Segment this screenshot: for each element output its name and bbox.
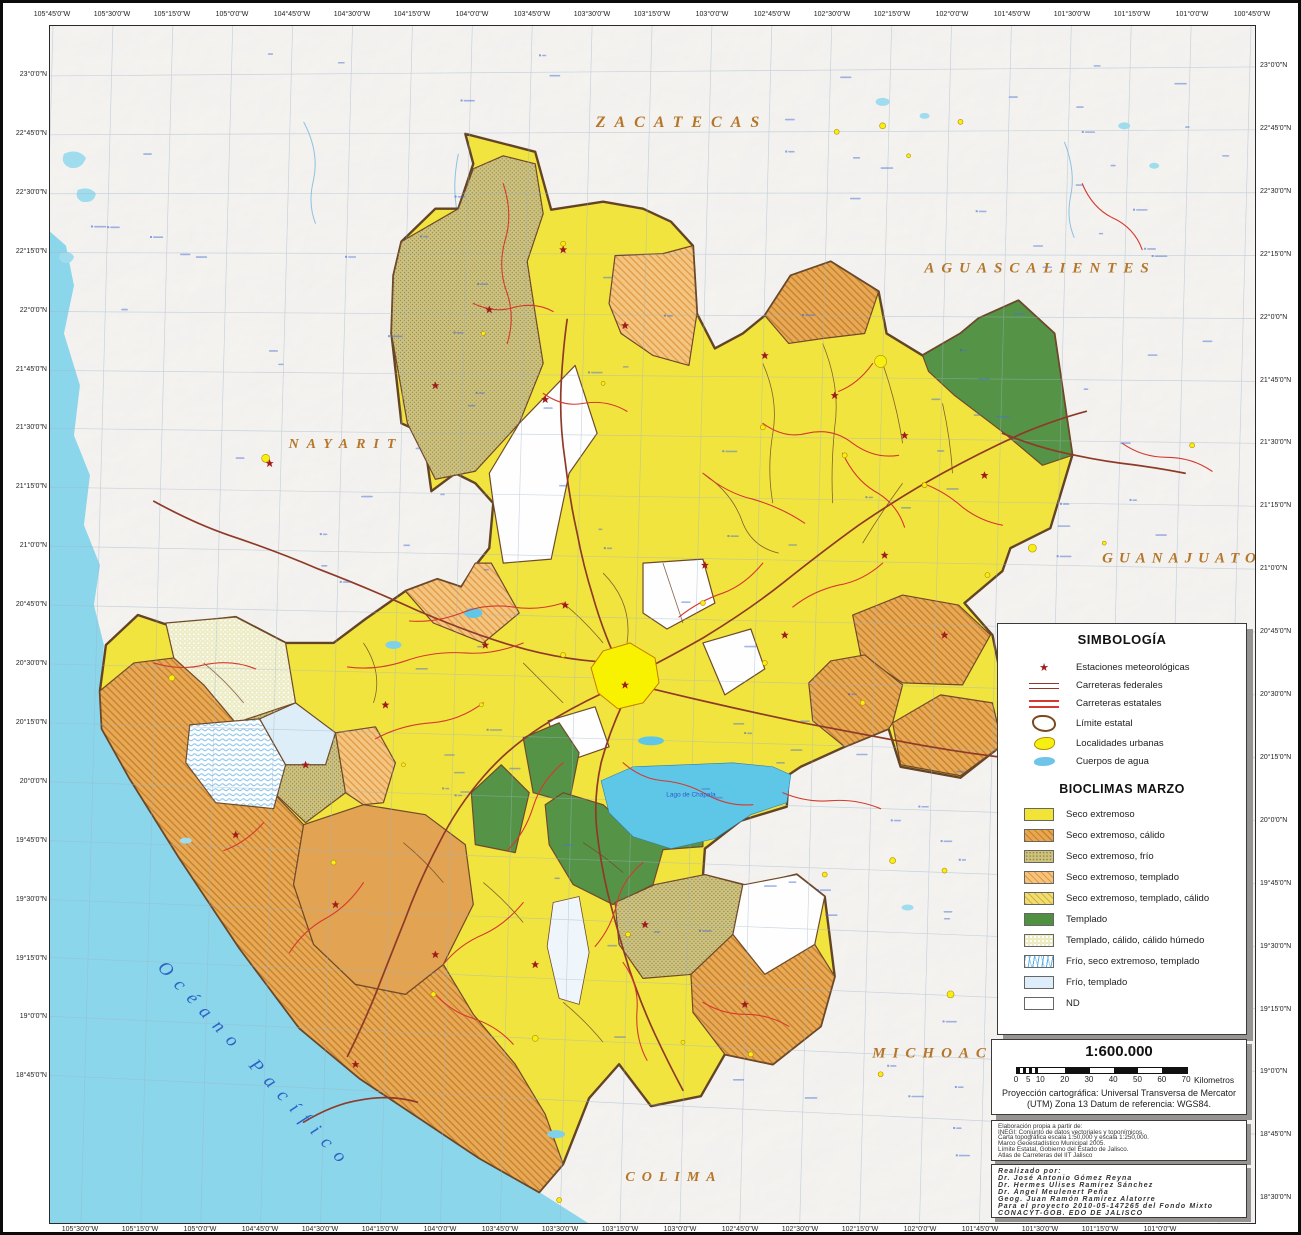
coordinate-label-right: 23°0'0"N [1260, 62, 1301, 70]
bioclima-row: Templado, cálido, cálido húmedo [1024, 934, 1246, 947]
authors-credits-box: Realizado por:Dr. José Antonio Gómez Rey… [991, 1164, 1247, 1218]
coordinate-label-bottom: 101°15'0"W [1074, 1226, 1126, 1234]
legend-box: SIMBOLOGÍA ★Estaciones meteorológicasCar… [997, 623, 1247, 1035]
water-shape [1034, 757, 1055, 766]
coordinate-label-right: 19°15'0"N [1260, 1006, 1301, 1014]
coordinate-label-right: 20°30'0"N [1260, 691, 1301, 699]
coordinate-label-right: 18°30'0"N [1260, 1194, 1301, 1202]
sheet-border: Lago de Chapala ZACATECAS AGUASCALIENTES… [0, 0, 1301, 1235]
projection-line2: (UTM) Zona 13 Datum de referencia: WGS84… [992, 1099, 1246, 1110]
coordinate-label-bottom: 103°45'0"W [474, 1226, 526, 1234]
coordinate-label-right: 20°0'0"N [1260, 817, 1301, 825]
coordinate-label-right: 20°45'0"N [1260, 628, 1301, 636]
scale-tick-label: 50 [1133, 1075, 1142, 1084]
bioclima-label: Seco extremoso, frío [1066, 851, 1154, 862]
coordinate-label-left: 22°45'0"N [7, 130, 47, 138]
coordinate-label-top: 102°45'0"W [746, 11, 798, 19]
legend-symbol-row: Carreteras estatales [1024, 697, 1246, 710]
scale-tick-label: 70 [1182, 1075, 1191, 1084]
bioclima-row: Frío, seco extremoso, templado [1024, 955, 1246, 968]
coordinate-label-top: 105°0'0"W [206, 11, 258, 19]
coordinate-label-right: 22°0'0"N [1260, 314, 1301, 322]
coordinate-label-bottom: 105°15'0"W [114, 1226, 166, 1234]
legend-symbol-label: Estaciones meteorológicas [1076, 662, 1190, 673]
coordinate-label-bottom: 104°15'0"W [354, 1226, 406, 1234]
scale-bar-segment [1114, 1068, 1138, 1073]
coordinate-label-right: 21°15'0"N [1260, 502, 1301, 510]
coordinate-label-bottom: 102°45'0"W [714, 1226, 766, 1234]
scale-bar [1016, 1067, 1188, 1074]
coordinate-label-top: 100°45'0"W [1226, 11, 1278, 19]
bioclima-swatch-templado [1024, 913, 1054, 926]
bioclima-row: ND [1024, 997, 1246, 1010]
scale-bar-segment [1090, 1068, 1114, 1073]
scale-tick-label: 40 [1109, 1075, 1118, 1084]
coordinate-label-bottom: 103°0'0"W [654, 1226, 706, 1234]
coordinate-label-left: 21°15'0"N [7, 483, 47, 491]
author-credit-line: Dr. Ángel Meulenert Peña [998, 1189, 1240, 1196]
legend-symbol-label: Localidades urbanas [1076, 738, 1164, 749]
coordinate-label-left: 19°45'0"N [7, 837, 47, 845]
lake-chapala-label: Lago de Chapala [666, 792, 716, 799]
legend-symbol-row: ★Estaciones meteorológicas [1024, 661, 1246, 674]
coordinate-label-left: 22°15'0"N [7, 248, 47, 256]
line-federal-icon [1024, 681, 1064, 691]
bioclima-swatch-frio_templado [1024, 976, 1054, 989]
coordinate-label-bottom: 102°0'0"W [894, 1226, 946, 1234]
bioclima-row: Seco extremoso, templado [1024, 871, 1246, 884]
legend-symbol-label: Carreteras federales [1076, 680, 1163, 691]
bioclima-label: Frío, seco extremoso, templado [1066, 956, 1200, 967]
scale-tick-label: 30 [1084, 1075, 1093, 1084]
author-credit-line: Dr. Hermes Ulises Ramírez Sánchez [998, 1182, 1240, 1189]
bioclima-label: Seco extremoso, templado, cálido [1066, 893, 1209, 904]
coordinate-label-bottom: 104°30'0"W [294, 1226, 346, 1234]
author-credit-line: Realizado por: [998, 1168, 1240, 1175]
bioclima-row: Seco extremoso, templado, cálido [1024, 892, 1246, 905]
boundary-icon [1024, 715, 1064, 732]
symbol-list: ★Estaciones meteorológicasCarreteras fed… [1024, 661, 1246, 768]
legend-title: SIMBOLOGÍA [998, 632, 1246, 647]
coordinate-label-top: 105°45'0"W [26, 11, 78, 19]
coordinate-label-right: 20°15'0"N [1260, 754, 1301, 762]
scale-tick-label: 60 [1157, 1075, 1166, 1084]
coordinate-label-left: 19°15'0"N [7, 955, 47, 963]
author-credit-line: CONACYT-GOB. EDO DE JALISCO [998, 1210, 1240, 1217]
coordinate-label-bottom: 102°30'0"W [774, 1226, 826, 1234]
coordinate-label-bottom: 101°45'0"W [954, 1226, 1006, 1234]
coordinate-label-left: 20°0'0"N [7, 778, 47, 786]
coordinate-label-right: 19°30'0"N [1260, 943, 1301, 951]
bioclimas-title: BIOCLIMAS MARZO [998, 782, 1246, 796]
author-credit-line: Dr. José Antonio Gómez Reyna [998, 1175, 1240, 1182]
scale-tick-label: 0 [1014, 1075, 1018, 1084]
coordinate-label-right: 21°0'0"N [1260, 565, 1301, 573]
coordinate-label-top: 104°30'0"W [326, 11, 378, 19]
coordinate-label-right: 18°45'0"N [1260, 1131, 1301, 1139]
coordinate-label-top: 101°45'0"W [986, 11, 1038, 19]
projection-line1: Proyección cartográfica: Universal Trans… [992, 1088, 1246, 1099]
bioclima-swatch-seco_templado [1024, 871, 1054, 884]
coordinate-label-bottom: 104°45'0"W [234, 1226, 286, 1234]
coordinate-label-left: 20°15'0"N [7, 719, 47, 727]
coordinate-label-left: 18°45'0"N [7, 1072, 47, 1080]
coordinate-label-top: 103°45'0"W [506, 11, 558, 19]
projection-note: Proyección cartográfica: Universal Trans… [992, 1088, 1246, 1110]
coordinate-label-top: 102°30'0"W [806, 11, 858, 19]
bioclima-swatch-templado_calido_humedo [1024, 934, 1054, 947]
urban-shape [1034, 737, 1055, 750]
coordinate-label-left: 22°0'0"N [7, 307, 47, 315]
bioclima-swatch-nd [1024, 997, 1054, 1010]
coordinate-label-top: 103°0'0"W [686, 11, 738, 19]
bioclima-row: Seco extremoso, cálido [1024, 829, 1246, 842]
bioclima-row: Seco extremoso, frío [1024, 850, 1246, 863]
bioclima-swatch-seco_calido [1024, 829, 1054, 842]
scale-tick-label: 10 [1036, 1075, 1045, 1084]
bioclimas-list: Seco extremosoSeco extremoso, cálidoSeco… [1024, 808, 1246, 1010]
coordinate-label-right: 19°45'0"N [1260, 880, 1301, 888]
legend-symbol-label: Carreteras estatales [1076, 698, 1162, 709]
coordinate-label-top: 102°0'0"W [926, 11, 978, 19]
bioclima-swatch-seco_frio [1024, 850, 1054, 863]
bioclima-label: Seco extremoso, cálido [1066, 830, 1165, 841]
coordinate-label-right: 22°45'0"N [1260, 125, 1301, 133]
coordinate-label-right: 21°45'0"N [1260, 377, 1301, 385]
coordinate-label-bottom: 104°0'0"W [414, 1226, 466, 1234]
scale-bar-segment [1138, 1068, 1162, 1073]
author-credit-line: Geog. Juan Ramón Ramírez Alatorre [998, 1196, 1240, 1203]
coordinate-label-bottom: 101°30'0"W [1014, 1226, 1066, 1234]
legend-symbol-row: Cuerpos de agua [1024, 755, 1246, 768]
coordinate-label-right: 21°30'0"N [1260, 439, 1301, 447]
bioclima-label: ND [1066, 998, 1080, 1009]
author-credit-line: Para el proyecto 2010-05-147265 del Fond… [998, 1203, 1240, 1210]
boundary-shape [1032, 715, 1056, 732]
coordinate-label-top: 103°15'0"W [626, 11, 678, 19]
coordinate-label-left: 21°45'0"N [7, 366, 47, 374]
scale-unit: Kilometros [1194, 1075, 1234, 1085]
coordinate-label-left: 22°30'0"N [7, 189, 47, 197]
scale-bar-segment [1065, 1068, 1089, 1073]
bioclima-label: Templado [1066, 914, 1107, 925]
coordinate-label-right: 19°0'0"N [1260, 1068, 1301, 1076]
source-credit-line: Atlas de Carreteras del IIT Jalisco [998, 1153, 1240, 1159]
bioclima-swatch-frio_seco_templado [1024, 955, 1054, 968]
coordinate-label-bottom: 102°15'0"W [834, 1226, 886, 1234]
coordinate-label-top: 102°15'0"W [866, 11, 918, 19]
bioclima-row: Seco extremoso [1024, 808, 1246, 821]
coordinate-label-top: 104°45'0"W [266, 11, 318, 19]
bioclima-row: Templado [1024, 913, 1246, 926]
scale-tick-label: 5 [1026, 1075, 1030, 1084]
coordinate-label-bottom: 101°0'0"W [1134, 1226, 1186, 1234]
coordinate-label-top: 104°15'0"W [386, 11, 438, 19]
legend-symbol-label: Límite estatal [1076, 718, 1133, 729]
scale-tick-label: 20 [1060, 1075, 1069, 1084]
coordinate-label-top: 105°30'0"W [86, 11, 138, 19]
coordinate-label-bottom: 105°30'0"W [54, 1226, 106, 1234]
legend-symbol-row: Límite estatal [1024, 715, 1246, 732]
star-icon: ★ [1024, 663, 1064, 673]
legend-symbol-label: Cuerpos de agua [1076, 756, 1149, 767]
coordinate-label-bottom: 103°30'0"W [534, 1226, 586, 1234]
coordinate-label-top: 101°30'0"W [1046, 11, 1098, 19]
water-icon [1024, 757, 1064, 766]
coordinate-label-top: 101°15'0"W [1106, 11, 1158, 19]
line-state-icon [1024, 698, 1064, 710]
coordinate-label-left: 20°45'0"N [7, 601, 47, 609]
bioclima-label: Templado, cálido, cálido húmedo [1066, 935, 1204, 946]
urban-icon [1024, 737, 1064, 750]
coordinate-label-right: 22°30'0"N [1260, 188, 1301, 196]
coordinate-label-bottom: 103°15'0"W [594, 1226, 646, 1234]
bioclima-label: Seco extremoso, templado [1066, 872, 1179, 883]
coordinate-label-left: 19°30'0"N [7, 896, 47, 904]
bioclima-label: Frío, templado [1066, 977, 1127, 988]
coordinate-label-top: 101°0'0"W [1166, 11, 1218, 19]
bioclima-row: Frío, templado [1024, 976, 1246, 989]
scale-box: 1:600.000 0510203040506070 Kilometros Pr… [991, 1039, 1247, 1115]
coordinate-label-left: 23°0'0"N [7, 71, 47, 79]
bioclima-label: Seco extremoso [1066, 809, 1135, 820]
coordinate-label-top: 103°30'0"W [566, 11, 618, 19]
coordinate-label-left: 21°0'0"N [7, 542, 47, 550]
bioclima-swatch-seco_templado_calido [1024, 892, 1054, 905]
coordinate-label-left: 19°0'0"N [7, 1013, 47, 1021]
legend-symbol-row: Localidades urbanas [1024, 737, 1246, 750]
legend-symbol-row: Carreteras federales [1024, 679, 1246, 692]
scale-ratio: 1:600.000 [992, 1043, 1246, 1060]
source-credits-box: Elaboración propia a partir de:INEGI: Co… [991, 1120, 1247, 1161]
coordinate-label-left: 21°30'0"N [7, 424, 47, 432]
coordinate-label-top: 104°0'0"W [446, 11, 498, 19]
coordinate-label-left: 20°30'0"N [7, 660, 47, 668]
map-sheet: { "colors":{ "seco":"#f2e437","seco_cali… [0, 0, 1301, 1235]
coordinate-label-right: 22°15'0"N [1260, 251, 1301, 259]
bioclima-swatch-seco [1024, 808, 1054, 821]
coordinate-label-bottom: 105°0'0"W [174, 1226, 226, 1234]
scale-bar-segment [1041, 1068, 1065, 1073]
scale-ticks: 0510203040506070 [1016, 1075, 1196, 1084]
scale-bar-segment [1162, 1068, 1186, 1073]
coordinate-label-top: 105°15'0"W [146, 11, 198, 19]
